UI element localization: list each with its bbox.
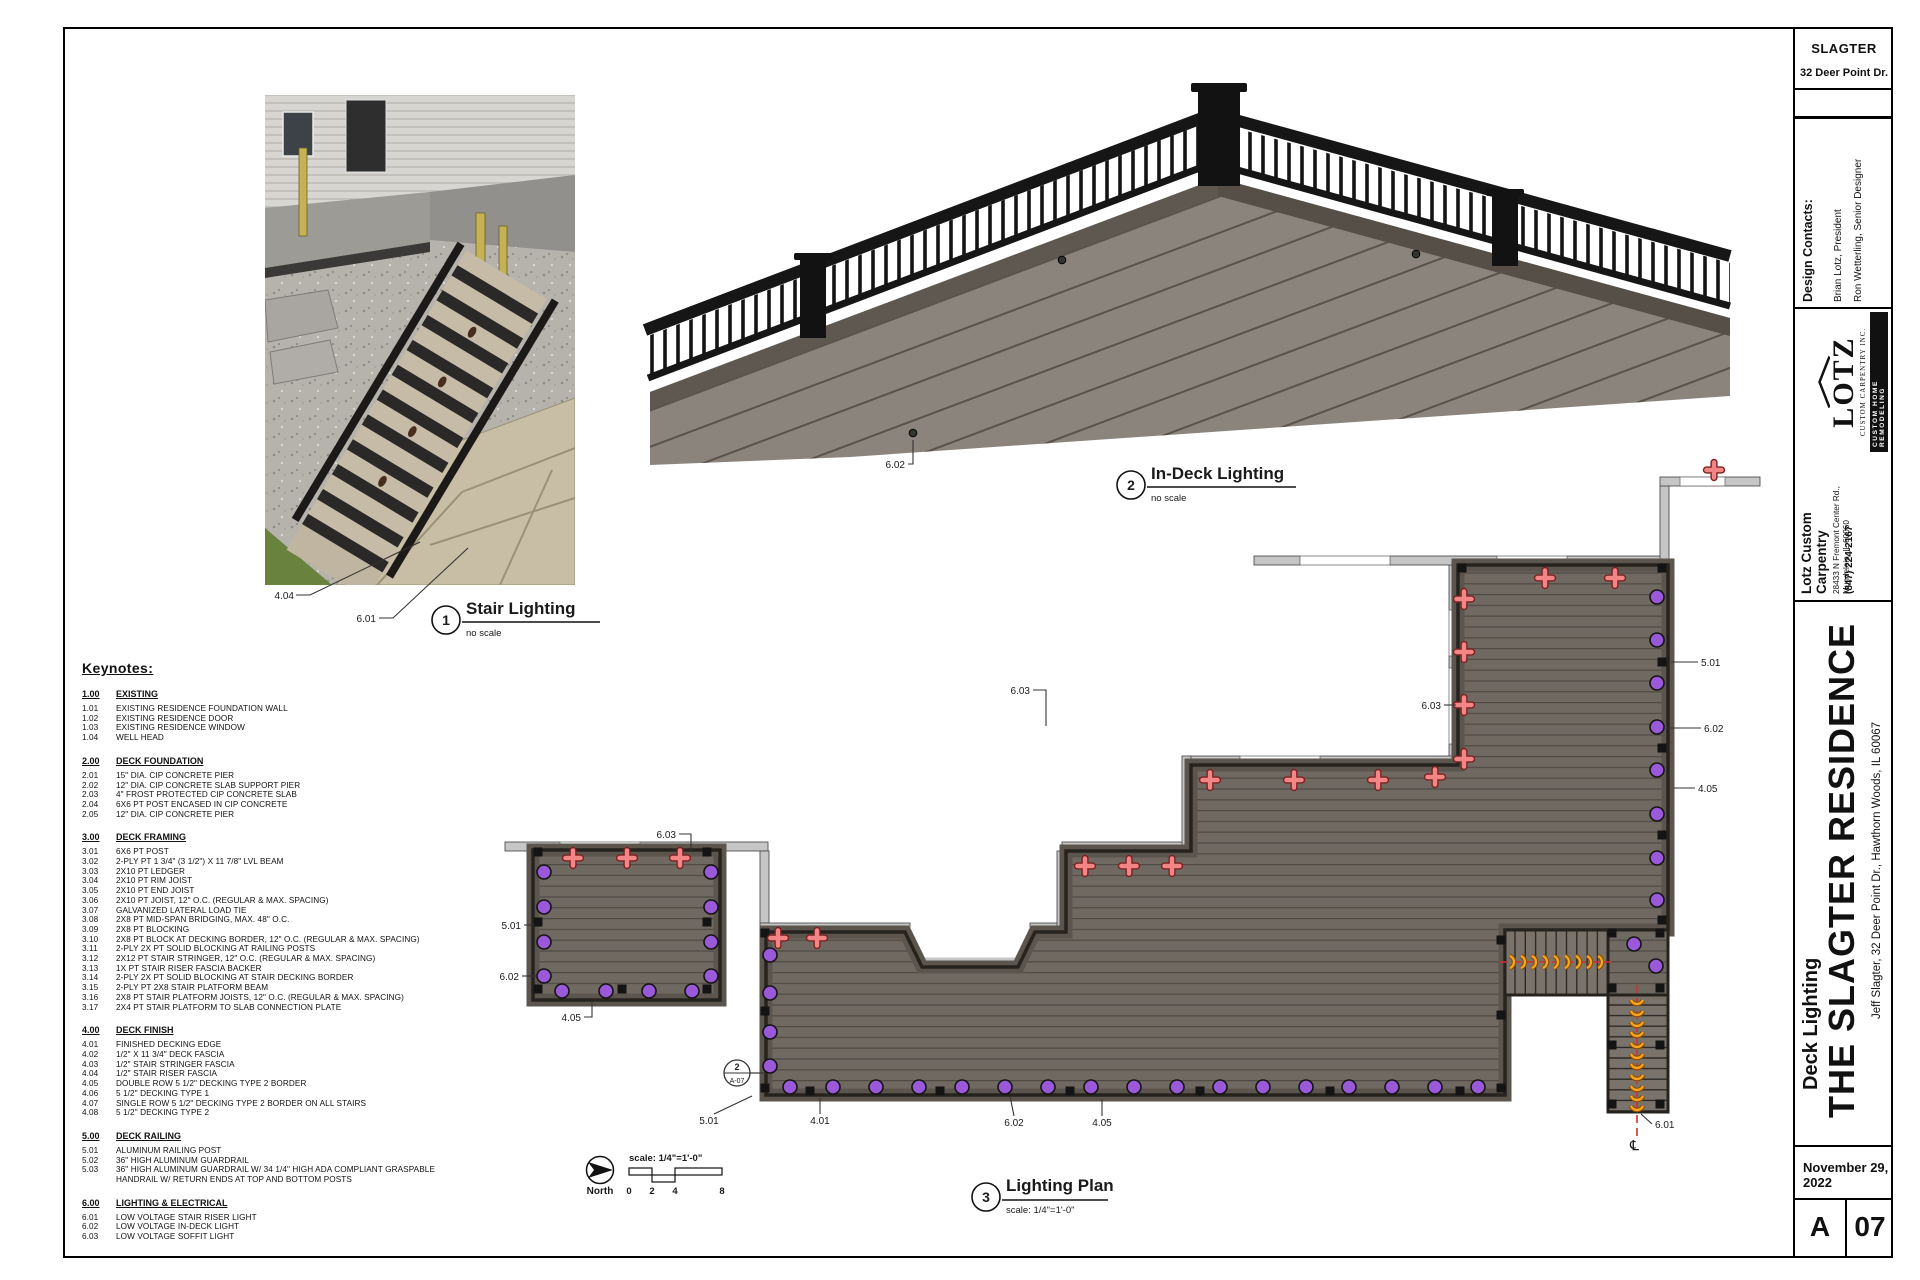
company-logo: LOTZ CUSTOM CARPENTRY INC. CUSTOM HOME R… xyxy=(1818,312,1888,452)
keynote-item: 1.01EXISTING RESIDENCE FOUNDATION WALL xyxy=(82,704,452,714)
project-name: SLAGTER xyxy=(1795,41,1893,56)
keynote-item: 3.142-PLY 2X PT SOLID BLOCKING AT STAIR … xyxy=(82,973,452,983)
keynote-item: 6.01LOW VOLTAGE STAIR RISER LIGHT xyxy=(82,1213,452,1223)
keynote-item: 6.03LOW VOLTAGE SOFFIT LIGHT xyxy=(82,1232,452,1242)
contact-designer: Ron Wetterling, Senior Designer xyxy=(1853,122,1864,302)
keynote-item: 3.032X10 PT LEDGER xyxy=(82,867,452,877)
keynote-item: 4.065 1/2" DECKING TYPE 1 xyxy=(82,1089,452,1099)
sheet-number: 07 xyxy=(1845,1198,1895,1258)
residence-title: THE SLAGTER RESIDENCE xyxy=(1821,600,1863,1140)
keynote-item: 3.162X8 PT STAIR PLATFORM JOISTS, 12" O.… xyxy=(82,993,452,1003)
keynote-section-header: 4.00DECK FINISH xyxy=(82,1025,452,1035)
keynote-item: 3.152-PLY PT 2X8 STAIR PLATFORM BEAM xyxy=(82,983,452,993)
design-contacts-label: Design Contacts: xyxy=(1801,122,1815,302)
keynote-section-header: 1.00EXISTING xyxy=(82,689,452,699)
keynote-item: 2.046X6 PT POST ENCASED IN CIP CONCRETE xyxy=(82,800,452,810)
company-phone: (847) 224-2167 xyxy=(1844,448,1855,594)
keynote-item: 4.05DOUBLE ROW 5 1/2" DECKING TYPE 2 BOR… xyxy=(82,1079,452,1089)
keynote-item: 3.042X10 PT RIM JOIST xyxy=(82,876,452,886)
keynote-item: 3.102X8 PT BLOCK AT DECKING BORDER, 12" … xyxy=(82,935,452,945)
keynote-item: 2.034" FROST PROTECTED CIP CONCRETE SLAB xyxy=(82,790,452,800)
keynotes-title: Keynotes: xyxy=(82,660,452,676)
keynote-item: 2.0512" DIA. CIP CONCRETE PIER xyxy=(82,810,452,820)
keynote-item: 3.07GALVANIZED LATERAL LOAD TIE xyxy=(82,906,452,916)
keynote-item: 4.085 1/2" DECKING TYPE 2 xyxy=(82,1108,452,1118)
keynote-item: 3.172X4 PT STAIR PLATFORM TO SLAB CONNEC… xyxy=(82,1003,452,1013)
keynote-item: 2.0115" DIA. CIP CONCRETE PIER xyxy=(82,771,452,781)
keynote-item: 3.092X8 PT BLOCKING xyxy=(82,925,452,935)
project-address: 32 Deer Point Dr. xyxy=(1795,67,1893,79)
logo-badge: CUSTOM HOME REMODELING xyxy=(1870,312,1888,452)
keynote-item: 1.03EXISTING RESIDENCE WINDOW xyxy=(82,723,452,733)
keynote-item: 5.01ALUMINUM RAILING POST xyxy=(82,1146,452,1156)
keynote-item: 3.052X10 PT END JOIST xyxy=(82,886,452,896)
client-line: Jeff Slagter, 32 Deer Point Dr., Hawthor… xyxy=(1871,600,1883,1140)
keynote-item: 4.031/2" STAIR STRINGER FASCIA xyxy=(82,1060,452,1070)
company-address: 28433 N Fremont Center Rd.,Mundelein, IL… xyxy=(1822,448,1862,594)
keynotes: Keynotes: 1.00EXISTING1.01EXISTING RESID… xyxy=(82,660,452,1242)
keynote-item: 5.0236" HIGH ALUMINUM GUARDRAIL xyxy=(82,1156,452,1166)
sheet-title: Deck Lighting xyxy=(1800,600,1823,1090)
keynote-item: 4.021/2" X 11 3/4" DECK FASCIA xyxy=(82,1050,452,1060)
keynote-section-header: 6.00LIGHTING & ELECTRICAL xyxy=(82,1198,452,1208)
sheet-date: November 29, 2022 xyxy=(1803,1160,1893,1190)
keynote-item: 4.01FINISHED DECKING EDGE xyxy=(82,1040,452,1050)
keynote-item: 3.131X PT STAIR RISER FASCIA BACKER xyxy=(82,964,452,974)
keynote-item: 4.041/2" STAIR RISER FASCIA xyxy=(82,1069,452,1079)
sheet-series: A xyxy=(1795,1198,1845,1258)
keynote-item: 2.0212" DIA. CIP CONCRETE SLAB SUPPORT P… xyxy=(82,781,452,791)
keynote-item: 3.062X10 PT JOIST, 12" O.C. (REGULAR & M… xyxy=(82,896,452,906)
keynote-item: 5.0336" HIGH ALUMINUM GUARDRAIL W/ 34 1/… xyxy=(82,1165,452,1184)
keynote-section-header: 2.00DECK FOUNDATION xyxy=(82,756,452,766)
logo-name: LOTZ xyxy=(1830,336,1858,427)
keynote-item: 3.016X6 PT POST xyxy=(82,847,452,857)
keynote-item: 1.04WELL HEAD xyxy=(82,733,452,743)
keynote-item: 3.112-PLY 2X PT SOLID BLOCKING AT RAILIN… xyxy=(82,944,452,954)
keynote-item: 3.082X8 PT MID-SPAN BRIDGING, MAX. 48" O… xyxy=(82,915,452,925)
keynote-item: 4.07SINGLE ROW 5 1/2" DECKING TYPE 2 BOR… xyxy=(82,1099,452,1109)
keynote-item: 1.02EXISTING RESIDENCE DOOR xyxy=(82,714,452,724)
logo-subtitle: CUSTOM CARPENTRY INC. xyxy=(1859,328,1867,436)
keynote-item: 6.02LOW VOLTAGE IN-DECK LIGHT xyxy=(82,1222,452,1232)
title-block: SLAGTER 32 Deer Point Dr. Design Contact… xyxy=(1793,27,1893,1258)
keynote-item: 3.022-PLY PT 1 3/4" (3 1/2") X 11 7/8" L… xyxy=(82,857,452,867)
keynote-item: 3.122X12 PT STAIR STRINGER, 12" O.C. (RE… xyxy=(82,954,452,964)
contact-president: Brian Lotz, President xyxy=(1833,122,1844,302)
keynote-section-header: 3.00DECK FRAMING xyxy=(82,832,452,842)
keynote-section-header: 5.00DECK RAILING xyxy=(82,1131,452,1141)
